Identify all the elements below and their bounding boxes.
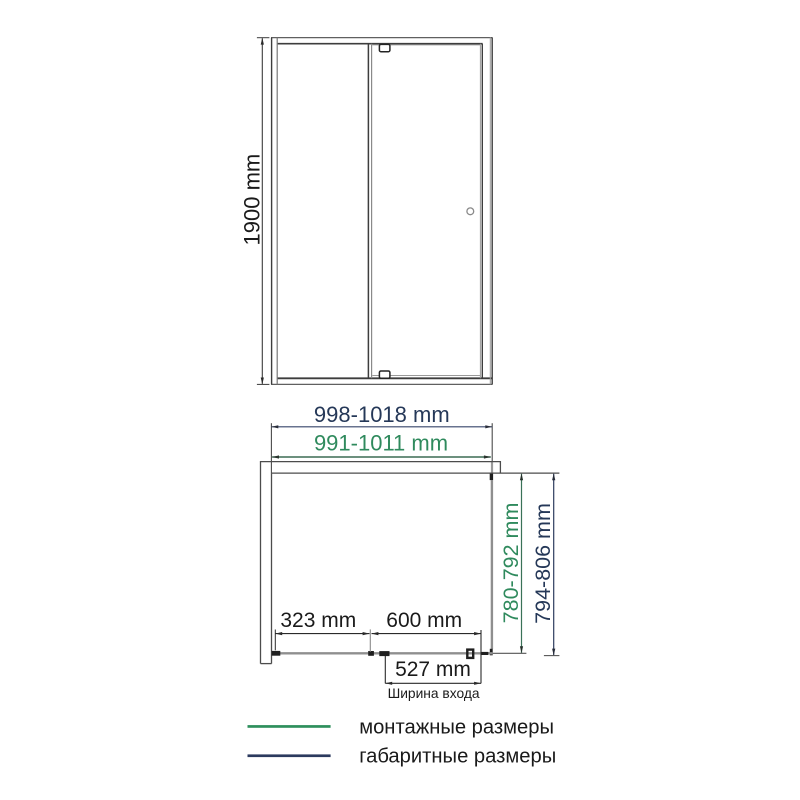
svg-text:Ширина входа: Ширина входа [388, 686, 480, 701]
svg-text:991-1011 mm: 991-1011 mm [314, 431, 448, 456]
svg-text:1900 mm: 1900 mm [240, 154, 265, 246]
svg-text:600 mm: 600 mm [386, 609, 462, 632]
svg-text:323 mm: 323 mm [280, 609, 356, 632]
svg-text:780-792 mm: 780-792 mm [499, 503, 523, 624]
svg-text:габаритные размеры: габаритные размеры [359, 746, 556, 768]
svg-text:998-1018 mm: 998-1018 mm [314, 402, 450, 427]
svg-text:527 mm: 527 mm [395, 658, 471, 681]
svg-text:монтажные размеры: монтажные размеры [359, 716, 554, 738]
svg-text:794-806 mm: 794-806 mm [531, 503, 555, 624]
